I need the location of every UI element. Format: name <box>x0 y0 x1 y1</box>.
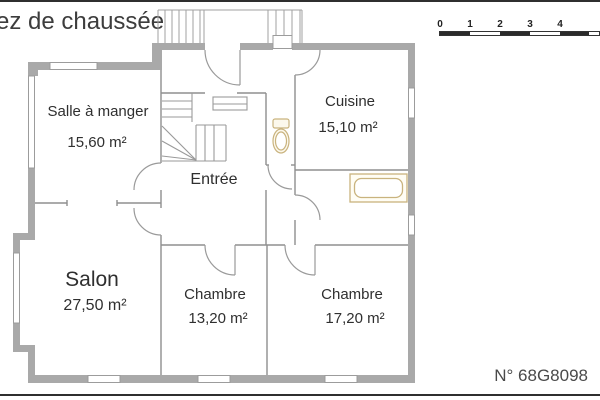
window <box>29 76 35 168</box>
door-arc-wc <box>268 165 292 189</box>
window <box>50 63 97 70</box>
room-label-chambre-1: Chambre <box>184 286 246 303</box>
room-label-salle-a-manger: Salle à manger <box>48 103 149 120</box>
area-label-chambre-1: 13,20 m² <box>188 310 247 327</box>
toilet-icon <box>273 119 289 153</box>
door-arc-front <box>205 50 240 85</box>
reference-number: N° 68G8098 <box>494 366 588 386</box>
door-arc-chambre2 <box>285 245 315 275</box>
area-label-chambre-2: 17,20 m² <box>325 310 384 327</box>
window <box>409 88 415 118</box>
area-label-salon: 27,50 m² <box>63 297 126 315</box>
area-label-salle-a-manger: 15,60 m² <box>67 134 126 151</box>
door-arc-bain <box>295 195 320 220</box>
door-arc-salon <box>134 208 161 235</box>
door-threshold <box>273 36 292 49</box>
bathtub-icon <box>350 174 407 202</box>
window <box>14 253 20 323</box>
window <box>409 215 415 235</box>
windows <box>14 36 415 383</box>
room-label-chambre-2: Chambre <box>321 286 383 303</box>
doors <box>134 50 320 275</box>
door-arc-cuisine <box>295 50 320 75</box>
window <box>325 376 357 383</box>
floor-plan <box>0 0 600 400</box>
window <box>198 376 230 383</box>
room-label-entree: Entrée <box>190 171 237 189</box>
door-arc-salle <box>134 163 161 190</box>
window <box>88 376 120 383</box>
room-label-salon: Salon <box>65 268 119 292</box>
staircase <box>162 93 247 161</box>
door-arc-chambre1 <box>205 245 235 275</box>
area-label-cuisine: 15,10 m² <box>318 119 377 136</box>
room-label-cuisine: Cuisine <box>325 93 375 110</box>
